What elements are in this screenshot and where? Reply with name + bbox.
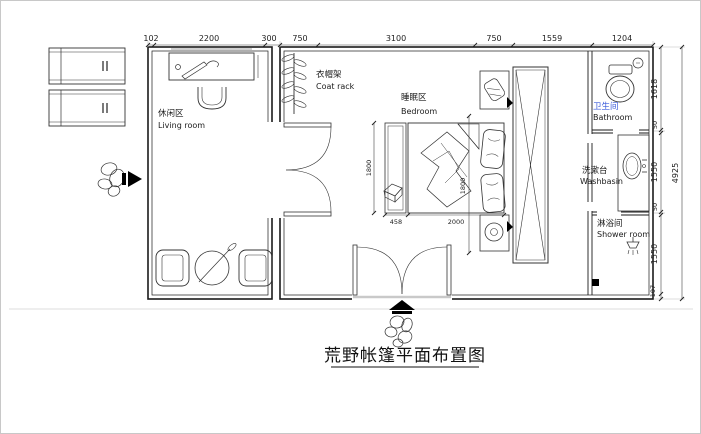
dim-right-1: 50 xyxy=(651,121,659,129)
floor-plan-drawing: 休闲区 Living room 衣帽架 Coat rack 睡眠区 Bedroo… xyxy=(1,1,700,433)
dim-right-3: 50 xyxy=(651,203,659,211)
nightstand-bottom xyxy=(480,215,513,251)
lounge-chair-1 xyxy=(49,48,125,84)
dim-top-2: 300 xyxy=(261,34,276,43)
dim-top-6: 1559 xyxy=(542,34,562,43)
washbasin-label-en: Washbasin xyxy=(580,177,623,186)
up-arrow-icon xyxy=(389,300,415,310)
shower-label-zh: 淋浴间 xyxy=(597,218,623,229)
dim-bed-length: 2000 xyxy=(448,218,465,226)
entry-arrow-icon xyxy=(122,171,142,187)
entry-marker-left xyxy=(97,161,142,198)
plant-sketch-bottom xyxy=(384,315,414,347)
living-room-label: 休闲区 Living room xyxy=(158,108,205,130)
wardrobe xyxy=(513,67,548,263)
dim-top-0: 102 xyxy=(143,34,158,43)
desk-chair xyxy=(198,87,226,109)
dim-right-4: 1550 xyxy=(650,244,659,264)
dim-top-5: 750 xyxy=(486,34,501,43)
wall-lamp-top-icon xyxy=(507,97,513,108)
coat-rack xyxy=(281,53,307,114)
coat-rack-label-en: Coat rack xyxy=(316,82,355,91)
dim-bed-width-b: 1800 xyxy=(459,178,467,195)
bathroom-label: 卫生间 Bathroom xyxy=(593,101,633,122)
pillows xyxy=(480,129,506,213)
drawing-title-text: 荒野帐篷平面布置图 xyxy=(324,346,486,366)
coat-rack-label: 衣帽架 Coat rack xyxy=(316,69,355,91)
living-room-label-zh: 休闲区 xyxy=(158,108,184,119)
washbasin-label: 洗漱台 Washbasin xyxy=(580,165,623,186)
toilet xyxy=(606,58,643,102)
dim-top-4: 3100 xyxy=(386,34,406,43)
bedroom-label-en: Bedroom xyxy=(401,107,437,116)
dim-top-7: 1204 xyxy=(612,34,632,43)
wall-lamp-bottom-icon xyxy=(507,221,513,232)
top-dimension-chain: 102 2200 300 750 3100 750 1559 1204 xyxy=(143,34,655,47)
living-room-desk xyxy=(169,49,258,80)
coat-rack-label-zh: 衣帽架 xyxy=(316,69,342,80)
dim-top-1: 2200 xyxy=(199,34,219,43)
shower-head-icon xyxy=(627,237,639,255)
shower-label-en: Shower room xyxy=(597,230,650,239)
nightstand-top xyxy=(480,71,513,109)
living-room-walls xyxy=(148,47,272,299)
washbasin-counter xyxy=(618,135,649,211)
entry-marker-bottom xyxy=(384,300,415,347)
interior-door-opening xyxy=(266,122,286,218)
lounge-chair-2 xyxy=(49,90,125,126)
bathroom-label-zh: 卫生间 xyxy=(593,101,619,112)
dim-top-3: 750 xyxy=(292,34,307,43)
lounge-chairs xyxy=(49,48,125,126)
dim-right-total: 4925 xyxy=(671,163,680,183)
cube-stool-sketch xyxy=(384,184,402,202)
sink-icon xyxy=(623,153,641,179)
floor-plan-page: 休闲区 Living room 衣帽架 Coat rack 睡眠区 Bedroo… xyxy=(0,0,701,434)
floor-drain-icon xyxy=(592,279,599,286)
duvet-sketch xyxy=(421,132,471,207)
table-lamp-icon xyxy=(485,223,503,241)
drawing-title: 荒野帐篷平面布置图 xyxy=(324,346,486,367)
dim-right-2: 1550 xyxy=(650,162,659,182)
washbasin-label-zh: 洗漱台 xyxy=(582,165,608,176)
bedroom-label-zh: 睡眠区 xyxy=(401,93,427,103)
dim-foot-stool: 458 xyxy=(390,218,402,226)
entry-double-door xyxy=(353,245,451,297)
dim-right-5: 107 xyxy=(649,285,657,297)
dim-right-0: 1618 xyxy=(650,79,659,99)
right-dimension-chain: 1618 50 1550 50 1550 107 4925 xyxy=(649,45,685,301)
bedroom-label: 睡眠区 Bedroom xyxy=(401,93,437,116)
armchair-set xyxy=(156,242,272,286)
living-room-label-en: Living room xyxy=(158,121,205,130)
dim-bed-width: 1800 xyxy=(365,160,373,177)
interior-double-door xyxy=(284,123,331,216)
shower-room: 淋浴间 Shower room xyxy=(592,218,650,286)
bathroom-label-en: Bathroom xyxy=(593,113,633,122)
